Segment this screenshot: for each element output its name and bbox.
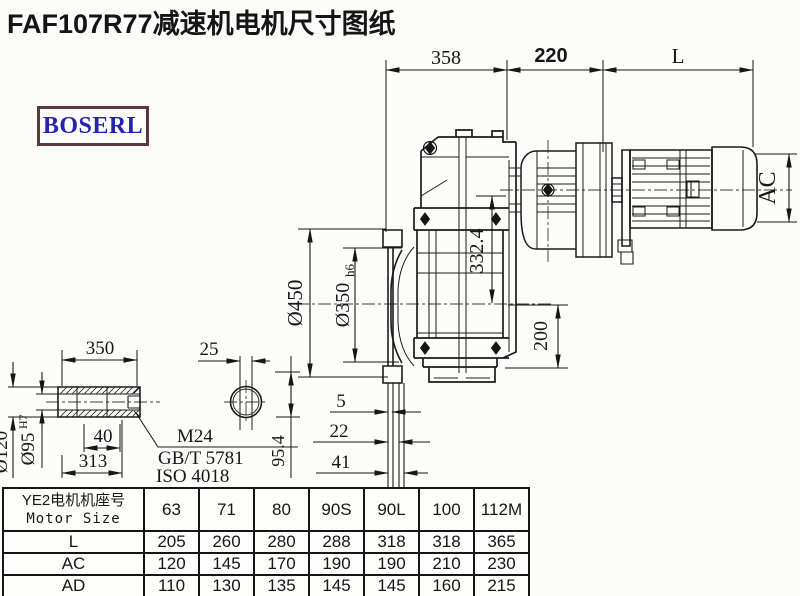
table-cell: 190 <box>364 553 419 575</box>
row-label-AC: AC <box>3 553 144 575</box>
shaft-dim-95-tol: H7 <box>16 414 30 429</box>
table-cell: 280 <box>254 531 309 553</box>
row-label-L: L <box>3 531 144 553</box>
table-size-col: 63 <box>144 488 199 531</box>
dim-AC: AC <box>755 171 781 204</box>
table-cell: 160 <box>419 575 474 596</box>
motor <box>618 147 757 264</box>
extension-lines <box>8 60 797 478</box>
table-cell: 230 <box>474 553 529 575</box>
table-cell: 145 <box>199 553 254 575</box>
dim-220: 220 <box>534 45 567 67</box>
dim-332-4: 332.4 <box>466 229 488 274</box>
table-row-header: YE2电机机座号 Motor Size 63 71 80 90S 90L 100… <box>3 488 529 531</box>
motor-size-table: YE2电机机座号 Motor Size 63 71 80 90S 90L 100… <box>2 487 530 596</box>
table-header-en: Motor Size <box>4 510 143 528</box>
dim-450: Ø450 <box>283 280 307 327</box>
table-header-cn: YE2电机机座号 <box>4 492 143 510</box>
dim-350h6-tol: h6 <box>342 264 357 278</box>
table-cell: 135 <box>254 575 309 596</box>
table-size-col: 90L <box>364 488 419 531</box>
gearbox-ribs <box>417 137 509 378</box>
shaft-dim-120: Ø120 <box>0 431 12 473</box>
table-cell: 365 <box>474 531 529 553</box>
table-cell: 145 <box>309 575 364 596</box>
shaft-thread-label: M24 <box>177 426 213 447</box>
table-size-col: 71 <box>199 488 254 531</box>
table-cell: 210 <box>419 553 474 575</box>
dim-200: 200 <box>530 321 552 351</box>
dim-5: 5 <box>336 391 346 412</box>
table-cell: 170 <box>254 553 309 575</box>
shaft-dim-95: Ø95 <box>18 433 39 466</box>
table-row-AC: AC 120 145 170 190 190 210 230 <box>3 553 529 575</box>
dim-L: L <box>672 44 685 68</box>
table-cell: 130 <box>199 575 254 596</box>
table-cell: 318 <box>364 531 419 553</box>
dim-95-4: 95.4 <box>268 435 288 467</box>
dim-22: 22 <box>330 421 349 442</box>
table-cell: 260 <box>199 531 254 553</box>
dim-350h6: Ø350 <box>332 283 354 327</box>
row-label-AD: AD <box>3 575 144 596</box>
table-cell: 318 <box>419 531 474 553</box>
dim-41: 41 <box>332 452 351 473</box>
dimension-labels: 358 220 L AC 332.4 200 Ø450 Ø350 h6 5 22… <box>0 44 781 487</box>
shaft-dim-40: 40 <box>94 426 113 447</box>
dim-358: 358 <box>431 47 461 69</box>
table-size-col: 100 <box>419 488 474 531</box>
shaft-dim-313: 313 <box>79 451 108 472</box>
table-row-L: L 205 260 280 288 318 318 365 <box>3 531 529 553</box>
drawing-sheet: FAF107R77减速机电机尺寸图纸 BOSERL <box>0 0 800 596</box>
shaft-dim-350: 350 <box>86 338 115 359</box>
table-cell: 215 <box>474 575 529 596</box>
shaft-std2-label: ISO 4018 <box>156 466 229 487</box>
input-adapter <box>509 143 622 257</box>
table-size-col: 90S <box>309 488 364 531</box>
table-header-motor-size: YE2电机机座号 Motor Size <box>3 488 144 531</box>
table-cell: 120 <box>144 553 199 575</box>
output-flange <box>383 230 414 487</box>
shaft-dim-25: 25 <box>200 339 219 360</box>
table-size-col: 112M <box>474 488 529 531</box>
table-cell: 205 <box>144 531 199 553</box>
table-row-AD: AD 110 130 135 145 145 160 215 <box>3 575 529 596</box>
table-cell: 190 <box>309 553 364 575</box>
table-cell: 145 <box>364 575 419 596</box>
table-cell: 288 <box>309 531 364 553</box>
table-size-col: 80 <box>254 488 309 531</box>
table-cell: 110 <box>144 575 199 596</box>
